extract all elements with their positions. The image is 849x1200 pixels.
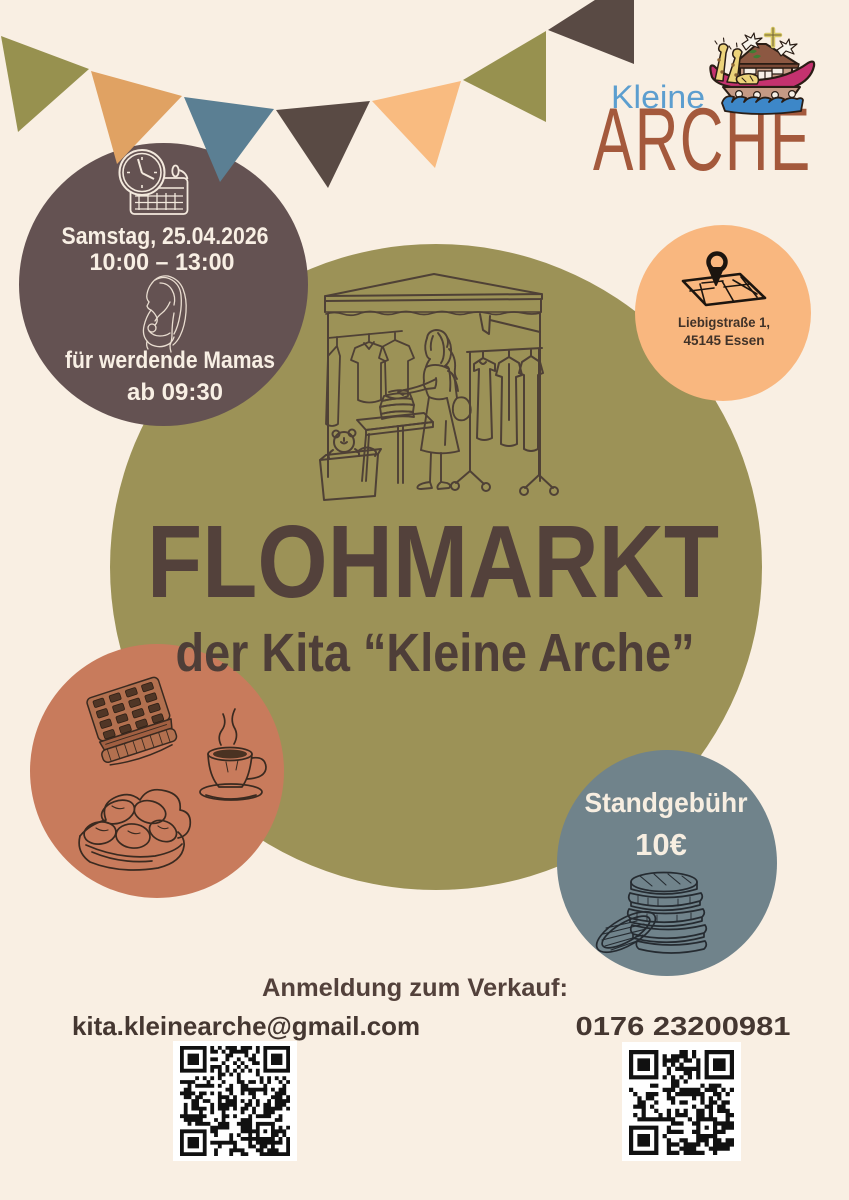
svg-text:FLOHMARKT: FLOHMARKT [147,504,719,619]
svg-text:der Kita “Kleine Arche”: der Kita “Kleine Arche” [176,623,695,683]
svg-text:Samstag, 25.04.2026: Samstag, 25.04.2026 [62,223,269,250]
svg-text:Liebigstraße 1,: Liebigstraße 1, [678,314,770,330]
svg-text:0176 23200981: 0176 23200981 [576,1011,791,1041]
svg-text:45145 Essen: 45145 Essen [684,332,765,348]
svg-text:für werdende Mamas: für werdende Mamas [65,347,275,374]
svg-text:Standgebühr: Standgebühr [585,787,748,818]
svg-text:ab 09:30: ab 09:30 [127,379,223,406]
svg-text:Anmeldung zum Verkauf:: Anmeldung zum Verkauf: [262,974,568,1002]
svg-text:10€: 10€ [635,827,687,862]
svg-text:kita.kleinearche@gmail.com: kita.kleinearche@gmail.com [72,1011,420,1041]
svg-text:10:00 – 13:00: 10:00 – 13:00 [90,249,235,276]
